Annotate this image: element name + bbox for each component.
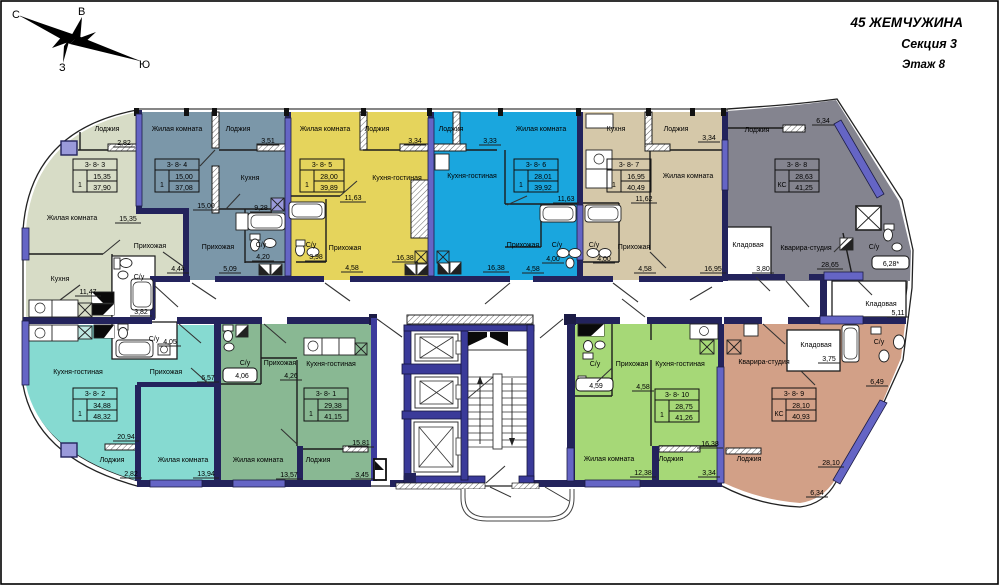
svg-text:Прихожая: Прихожая [618,244,651,251]
svg-text:6,28*: 6,28* [883,261,900,268]
svg-text:Кварира-студия: Кварира-студия [738,359,790,366]
svg-text:Жилая комната: Жилая комната [47,215,98,222]
svg-text:4,05: 4,05 [163,339,177,346]
svg-text:КС: КС [777,182,786,189]
svg-text:11,63: 11,63 [558,196,575,203]
svg-text:6,49: 6,49 [870,379,884,386]
svg-text:28,10: 28,10 [792,403,810,410]
svg-text:Жилая комната: Жилая комната [663,173,714,180]
svg-text:Этаж 8: Этаж 8 [902,59,946,71]
svg-text:3,98: 3,98 [309,254,323,261]
svg-text:Лоджия: Лоджия [95,126,120,133]
svg-text:Кладовая: Кладовая [865,301,897,308]
svg-text:С: С [12,9,20,21]
svg-text:Прихожая: Прихожая [202,244,235,251]
svg-text:4,58: 4,58 [638,266,652,273]
svg-text:2,82: 2,82 [124,471,138,478]
svg-text:20,94: 20,94 [117,434,135,441]
svg-text:Жилая комната: Жилая комната [584,456,635,463]
svg-text:С/у: С/у [552,242,563,249]
svg-text:3- 8- 10: 3- 8- 10 [665,392,689,399]
svg-text:Прихожая: Прихожая [616,361,649,368]
svg-text:Кухня-гостиная: Кухня-гостиная [306,361,356,368]
svg-text:28,10: 28,10 [822,460,840,467]
svg-text:2,82: 2,82 [117,140,131,147]
svg-text:1: 1 [660,412,664,419]
svg-text:Кухня-гостиная: Кухня-гостиная [372,175,422,182]
svg-text:3- 8- 1: 3- 8- 1 [316,391,336,398]
svg-text:4,58: 4,58 [526,266,540,273]
svg-text:Жилая комната: Жилая комната [516,126,567,133]
svg-text:11,47: 11,47 [80,289,97,296]
svg-text:4,58: 4,58 [636,384,650,391]
svg-text:3,80: 3,80 [756,266,770,273]
svg-text:С/у: С/у [134,274,145,281]
svg-text:3,34: 3,34 [702,470,716,477]
svg-text:С/у: С/у [589,242,600,249]
svg-text:С/у: С/у [590,361,601,368]
svg-text:С/у: С/у [256,242,267,249]
svg-text:Лоджия: Лоджия [439,126,464,133]
svg-text:1: 1 [309,411,313,418]
svg-text:39,89: 39,89 [320,185,338,192]
svg-text:41,25: 41,25 [795,185,813,192]
svg-text:11,62: 11,62 [636,196,653,203]
svg-text:16,38: 16,38 [396,255,414,262]
svg-text:4,26: 4,26 [284,373,298,380]
svg-text:Лоджия: Лоджия [664,126,689,133]
svg-text:3,45: 3,45 [355,472,369,479]
svg-text:Лоджия: Лоджия [365,126,390,133]
svg-text:16,95: 16,95 [627,174,645,181]
svg-text:28,01: 28,01 [534,174,552,181]
svg-text:3,34: 3,34 [408,138,422,145]
svg-text:1: 1 [612,182,616,189]
svg-text:48,32: 48,32 [93,414,111,421]
svg-text:3,75: 3,75 [822,356,836,363]
svg-text:Ю: Ю [139,59,150,71]
svg-text:С/у: С/у [240,360,251,367]
svg-text:41,26: 41,26 [675,415,693,422]
svg-text:Секция 3: Секция 3 [901,37,957,51]
svg-text:28,75: 28,75 [675,404,693,411]
svg-text:З: З [59,62,66,74]
svg-text:28,63: 28,63 [795,174,813,181]
svg-text:Прихожая: Прихожая [134,243,167,250]
svg-text:15,81: 15,81 [352,440,370,447]
svg-text:39,92: 39,92 [534,185,552,192]
svg-text:Жилая комната: Жилая комната [158,457,209,464]
svg-text:Кухня: Кухня [607,126,626,133]
svg-text:6,34: 6,34 [810,490,824,497]
svg-text:11,63: 11,63 [345,195,362,202]
svg-text:Кварира-студия: Кварира-студия [780,245,832,252]
svg-text:40,93: 40,93 [792,414,810,421]
svg-text:Лоджия: Лоджия [745,127,770,134]
svg-text:3,33: 3,33 [483,138,497,145]
svg-text:3- 8- 8: 3- 8- 8 [787,162,807,169]
svg-text:34,88: 34,88 [93,403,111,410]
svg-text:4,58: 4,58 [345,265,359,272]
svg-text:12,38: 12,38 [634,470,652,477]
svg-text:Кухня-гостиная: Кухня-гостиная [447,173,497,180]
svg-text:5,11: 5,11 [891,310,904,317]
svg-text:В: В [78,6,85,18]
svg-text:16,38: 16,38 [487,265,505,272]
svg-text:13,94: 13,94 [197,471,215,478]
svg-text:1: 1 [78,182,82,189]
svg-text:3- 8- 3: 3- 8- 3 [85,162,105,169]
svg-text:Лоджия: Лоджия [659,456,684,463]
svg-text:3- 8- 5: 3- 8- 5 [312,162,332,169]
svg-text:3- 8- 7: 3- 8- 7 [619,162,639,169]
svg-text:37,90: 37,90 [93,185,111,192]
svg-text:45 ЖЕМЧУЖИНА: 45 ЖЕМЧУЖИНА [850,15,963,30]
svg-text:С/у: С/у [869,244,880,251]
svg-text:6,34: 6,34 [816,118,830,125]
svg-text:КС: КС [774,411,783,418]
svg-text:Кладовая: Кладовая [800,342,832,349]
svg-text:Прихожая: Прихожая [507,242,540,249]
svg-text:Лоджия: Лоджия [226,126,251,133]
svg-text:3,82: 3,82 [134,309,148,316]
svg-text:28,65: 28,65 [821,262,839,269]
svg-text:3,51: 3,51 [261,138,275,145]
svg-text:Жилая комната: Жилая комната [233,457,284,464]
svg-text:40,49: 40,49 [627,185,645,192]
svg-text:3- 8- 4: 3- 8- 4 [167,162,187,169]
svg-text:4,06: 4,06 [235,373,249,380]
svg-text:Кухня-гостиная: Кухня-гостиная [53,369,103,376]
svg-text:3- 8- 9: 3- 8- 9 [784,391,804,398]
svg-text:Лоджия: Лоджия [100,457,125,464]
svg-text:15,00: 15,00 [197,203,215,210]
svg-text:1: 1 [78,411,82,418]
svg-text:С/у: С/у [149,336,160,343]
svg-text:Прихожая: Прихожая [264,360,297,367]
svg-text:С/у: С/у [874,339,885,346]
svg-text:С/у: С/у [306,242,317,249]
svg-text:28,00: 28,00 [320,174,338,181]
svg-text:15,00: 15,00 [175,174,193,181]
svg-text:3,34: 3,34 [702,135,716,142]
svg-text:3- 8- 6: 3- 8- 6 [526,162,546,169]
svg-text:5,09: 5,09 [223,266,237,273]
svg-text:3- 8- 2: 3- 8- 2 [85,391,105,398]
svg-text:15,35: 15,35 [93,174,111,181]
svg-text:13,57: 13,57 [280,472,298,479]
svg-text:1: 1 [519,182,523,189]
svg-text:Кухня: Кухня [51,276,70,283]
svg-text:41,15: 41,15 [324,414,342,421]
svg-text:Прихожая: Прихожая [150,369,183,376]
svg-text:Кухня: Кухня [241,175,260,182]
svg-text:1: 1 [160,182,164,189]
svg-text:4,20: 4,20 [256,254,270,261]
svg-text:29,38: 29,38 [324,403,342,410]
svg-text:4,00: 4,00 [597,256,611,263]
svg-text:4,44: 4,44 [171,266,185,273]
svg-text:16,95: 16,95 [704,266,722,273]
svg-text:Жилая комната: Жилая комната [152,126,203,133]
svg-text:Лоджия: Лоджия [737,456,762,463]
svg-text:37,08: 37,08 [175,185,193,192]
svg-text:9,28: 9,28 [254,205,268,212]
svg-text:Лоджия: Лоджия [306,457,331,464]
svg-text:4,59: 4,59 [589,383,603,390]
svg-text:Кладовая: Кладовая [732,242,764,249]
svg-text:4,00: 4,00 [546,256,560,263]
svg-text:16,38: 16,38 [701,441,719,448]
svg-text:Прихожая: Прихожая [329,245,362,252]
svg-text:15,35: 15,35 [119,216,137,223]
svg-text:Кухня-гостиная: Кухня-гостиная [655,361,705,368]
svg-text:1: 1 [305,182,309,189]
svg-text:Жилая комната: Жилая комната [300,126,351,133]
